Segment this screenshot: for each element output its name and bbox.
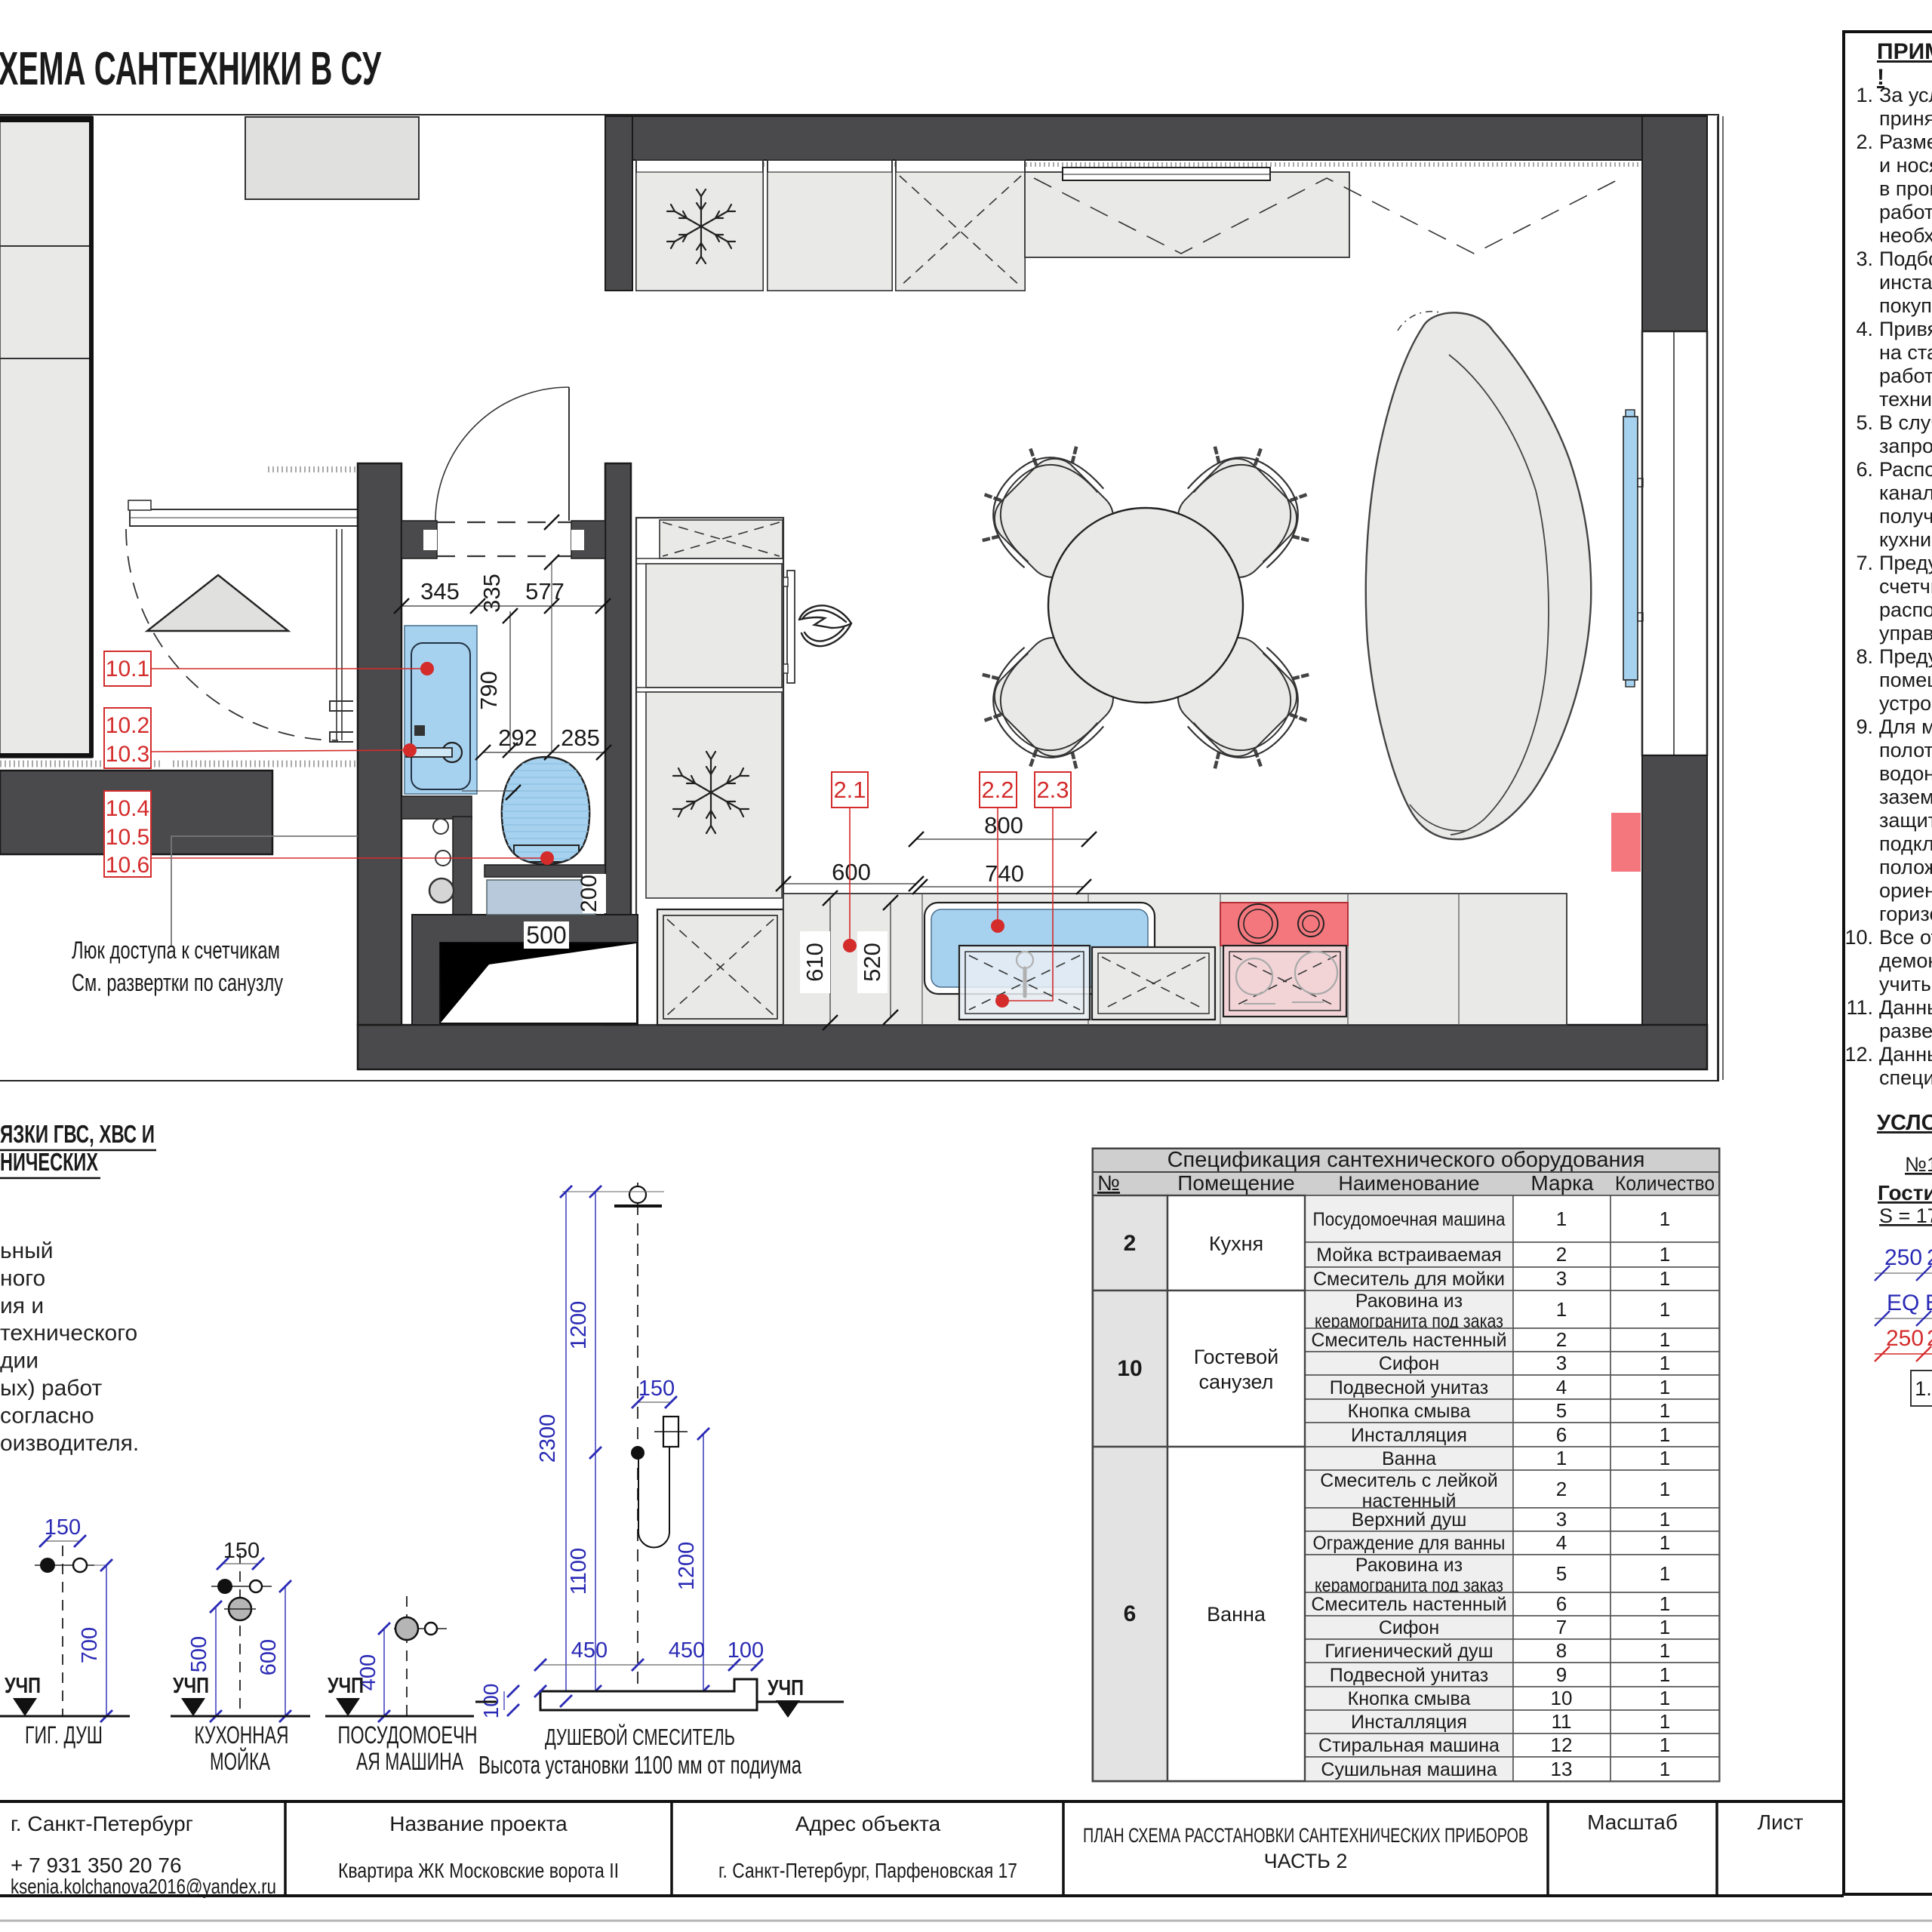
svg-text:помещений: помещений [1879, 669, 1932, 691]
svg-text:ЯЗКИ ГВС, ХВС И: ЯЗКИ ГВС, ХВС И [0, 1120, 155, 1148]
svg-text:Смеситель с лейкой: Смеситель с лейкой [1320, 1470, 1497, 1491]
svg-text:Подвесной унитаз: Подвесной унитаз [1330, 1665, 1488, 1686]
svg-text:3: 3 [1556, 1508, 1567, 1531]
svg-text:11.: 11. [1846, 996, 1873, 1019]
svg-text:Раковина из: Раковина из [1355, 1291, 1463, 1312]
svg-text:Верхний душ: Верхний душ [1352, 1509, 1467, 1531]
svg-text:1: 1 [1660, 1376, 1670, 1398]
svg-text:335: 335 [478, 574, 505, 613]
svg-text:технического: технического [0, 1321, 137, 1346]
svg-text:740: 740 [985, 860, 1024, 887]
svg-text:Предусмотр: Предусмотр [1879, 645, 1932, 668]
svg-text:Название проекта: Название проекта [389, 1812, 568, 1835]
svg-text:г. Санкт-Петербург: г. Санкт-Петербург [11, 1812, 193, 1835]
svg-text:1: 1 [1660, 1639, 1670, 1662]
svg-text:в процессе: в процессе [1879, 177, 1932, 200]
svg-text:6: 6 [1556, 1423, 1567, 1446]
svg-text:12: 12 [1551, 1734, 1573, 1756]
svg-text:12.: 12. [1844, 1043, 1873, 1066]
svg-text:6: 6 [1556, 1592, 1567, 1615]
svg-text:кухни и сант: кухни и сант [1879, 528, 1932, 551]
svg-text:500: 500 [187, 1636, 211, 1672]
svg-text:расположен: расположен [1879, 598, 1932, 621]
svg-text:4: 4 [1556, 1376, 1567, 1398]
svg-text:2: 2 [1556, 1478, 1567, 1500]
svg-text:1: 1 [1660, 1592, 1670, 1615]
svg-text:демонтажны: демонтажны [1879, 949, 1932, 972]
svg-text:10: 10 [1551, 1687, 1573, 1709]
svg-text:Квартира ЖК Московские ворота: Квартира ЖК Московские ворота II [338, 1859, 619, 1882]
svg-text:S = 17.9 м²: S = 17.9 м² [1879, 1204, 1932, 1227]
svg-text:150: 150 [45, 1515, 81, 1540]
svg-text:учитывать п: учитывать п [1879, 973, 1932, 995]
svg-text:УЧП: УЧП [768, 1676, 804, 1700]
svg-text:2.: 2. [1856, 131, 1873, 153]
svg-text:работ по чис: работ по чис [1879, 365, 1932, 387]
svg-text:положение о: положение о [1879, 856, 1932, 878]
svg-text:Предусмотр: Предусмотр [1879, 552, 1932, 574]
svg-text:577: 577 [525, 578, 565, 605]
svg-text:Количество: Количество [1615, 1172, 1715, 1195]
svg-text:1: 1 [1660, 1663, 1670, 1686]
svg-text:горизонталь: горизонталь [1879, 903, 1932, 925]
svg-text:2: 2 [1124, 1231, 1137, 1256]
svg-text:ДУШЕВОЙ СМЕСИТЕЛЬ: ДУШЕВОЙ СМЕСИТЕЛЬ [545, 1723, 735, 1750]
svg-text:600: 600 [257, 1639, 281, 1675]
svg-text:Инсталляция: Инсталляция [1351, 1425, 1467, 1446]
svg-text:СХЕМА САНТЕХНИКИ В СУ: СХЕМА САНТЕХНИКИ В СУ [0, 43, 382, 95]
svg-text:610: 610 [801, 943, 828, 982]
svg-text:водонагрева: водонагрева [1879, 762, 1932, 785]
svg-text:2300: 2300 [536, 1414, 560, 1463]
svg-text:АЯ МАШИНА: АЯ МАШИНА [356, 1748, 463, 1775]
svg-text:1: 1 [1660, 1687, 1670, 1709]
svg-text:устройства (: устройства ( [1879, 692, 1932, 715]
svg-text:ного: ного [0, 1266, 45, 1291]
svg-text:2.2: 2.2 [981, 777, 1014, 803]
svg-text:2: 2 [1556, 1243, 1567, 1266]
svg-text:Сифон: Сифон [1379, 1617, 1439, 1638]
svg-text:1: 1 [1660, 1734, 1670, 1756]
svg-text:1.1: 1.1 [1915, 1377, 1932, 1400]
svg-text:За условные: За условные [1879, 84, 1932, 106]
svg-text:10.6: 10.6 [106, 853, 149, 878]
svg-text:принято отм: принято отм [1879, 107, 1932, 130]
svg-text:Кухня: Кухня [1209, 1232, 1263, 1255]
svg-text:1: 1 [1660, 1243, 1670, 1266]
svg-text:Расположен: Расположен [1879, 458, 1932, 481]
svg-text:4: 4 [1556, 1531, 1567, 1554]
svg-text:10.5: 10.5 [106, 825, 149, 850]
svg-text:EQ: EQ [1887, 1291, 1919, 1315]
svg-text:10.2: 10.2 [106, 713, 149, 738]
svg-text:Инсталляция: Инсталляция [1351, 1712, 1467, 1733]
svg-text:Мойка встраиваемая: Мойка встраиваемая [1316, 1244, 1501, 1266]
svg-text:ия и: ия и [0, 1294, 44, 1318]
svg-text:МОЙКА: МОЙКА [210, 1748, 270, 1775]
svg-text:Данный черт: Данный черт [1879, 1043, 1932, 1066]
svg-text:УЧП: УЧП [173, 1674, 209, 1698]
svg-text:Подбор сант: Подбор сант [1879, 248, 1932, 270]
svg-text:1: 1 [1660, 1423, 1670, 1446]
svg-text:800: 800 [984, 812, 1023, 838]
svg-text:10.1: 10.1 [106, 657, 149, 681]
svg-text:покупки обо: покупки обо [1879, 294, 1932, 317]
svg-text:Стиральная машина: Стиральная машина [1318, 1735, 1500, 1756]
svg-text:1: 1 [1660, 1447, 1670, 1469]
svg-text:счетчиков во: счетчиков во [1879, 575, 1932, 598]
svg-text:ПРИМЕЧАНИЯ: ПРИМЕЧАНИЯ [1877, 39, 1932, 64]
svg-text:управляюще: управляюще [1879, 622, 1932, 645]
svg-text:№1 Помещ: №1 Помещ [1905, 1153, 1932, 1176]
svg-text:3: 3 [1556, 1352, 1567, 1374]
svg-text:1: 1 [1660, 1616, 1670, 1638]
svg-text:1: 1 [1556, 1207, 1567, 1230]
svg-text:520: 520 [859, 943, 885, 982]
svg-text:1: 1 [1660, 1207, 1670, 1230]
svg-text:8: 8 [1556, 1639, 1567, 1662]
svg-text:получения т: получения т [1879, 505, 1932, 528]
svg-text:2.1: 2.1 [833, 777, 866, 803]
svg-text:Ванна: Ванна [1207, 1603, 1266, 1626]
svg-text:Посудомоечная машина: Посудомоечная машина [1313, 1209, 1506, 1230]
svg-text:1: 1 [1556, 1447, 1567, 1469]
svg-text:Смеситель настенный: Смеситель настенный [1311, 1594, 1506, 1615]
svg-text:1: 1 [1660, 1710, 1670, 1733]
svg-text:Ограждение для ванны: Ограждение для ванны [1313, 1533, 1506, 1554]
svg-text:1: 1 [1660, 1478, 1670, 1500]
svg-text:250: 250 [1886, 1326, 1924, 1351]
svg-text:и носят реко: и носят реко [1879, 154, 1932, 177]
svg-text:Данный черт: Данный черт [1879, 996, 1932, 1019]
svg-text:В случае нев: В случае нев [1879, 411, 1932, 434]
svg-text:450: 450 [669, 1638, 705, 1663]
svg-text:8.: 8. [1856, 645, 1873, 668]
svg-text:2: 2 [1556, 1328, 1567, 1351]
svg-text:Привязка са: Привязка са [1879, 318, 1932, 340]
svg-text:техническим: техническим [1879, 388, 1932, 411]
svg-text:Смеситель для мойки: Смеситель для мойки [1313, 1269, 1505, 1290]
svg-text:ГИГ. ДУШ: ГИГ. ДУШ [25, 1721, 103, 1749]
svg-text:Спецификация сантехнического о: Спецификация сантехнического оборудовани… [1168, 1148, 1645, 1172]
svg-text:450: 450 [571, 1638, 608, 1663]
svg-text:4.: 4. [1856, 318, 1873, 340]
svg-text:КУХОННАЯ: КУХОННАЯ [195, 1721, 289, 1749]
svg-text:700: 700 [78, 1627, 102, 1663]
svg-text:Лист: Лист [1758, 1810, 1804, 1834]
svg-text:Люк доступа к счетчикам: Люк доступа к счетчикам [72, 937, 280, 964]
svg-text:1200: 1200 [675, 1542, 699, 1591]
svg-text:500: 500 [526, 921, 566, 949]
svg-text:УЧП: УЧП [328, 1674, 364, 1698]
svg-text:ПОСУДОМОЕЧН: ПОСУДОМОЕЧН [338, 1721, 478, 1749]
svg-text:2.3: 2.3 [1036, 777, 1069, 803]
svg-text:канализаци: канализаци [1879, 481, 1932, 504]
svg-text:1: 1 [1556, 1298, 1567, 1321]
svg-text:1: 1 [1660, 1562, 1670, 1585]
svg-text:600: 600 [832, 859, 871, 885]
svg-text:оизводителя.: оизводителя. [0, 1431, 139, 1456]
svg-text:развертками: развертками [1879, 1020, 1932, 1042]
svg-text:1: 1 [1660, 1508, 1670, 1531]
svg-text:№: № [1097, 1171, 1120, 1195]
svg-text:150: 150 [638, 1377, 675, 1401]
svg-text:ьный: ьный [0, 1238, 54, 1263]
svg-text:Все отделоч: Все отделоч [1879, 926, 1932, 949]
svg-text:1: 1 [1660, 1267, 1670, 1290]
svg-text:Масштаб: Масштаб [1587, 1810, 1678, 1834]
svg-text:13: 13 [1551, 1758, 1573, 1780]
svg-text:285: 285 [561, 724, 600, 751]
svg-text:Смеситель настенный: Смеситель настенный [1311, 1330, 1506, 1351]
svg-text:г. Санкт-Петербург, Парфеновск: г. Санкт-Петербург, Парфеновская 17 [718, 1859, 1017, 1882]
svg-text:работ! При н: работ! При н [1879, 201, 1932, 223]
svg-text:6.: 6. [1856, 458, 1873, 481]
svg-text:Гигиенический душ: Гигиенический душ [1324, 1641, 1493, 1662]
svg-text:Адрес объекта: Адрес объекта [795, 1812, 941, 1835]
svg-text:3: 3 [1556, 1267, 1567, 1290]
svg-text:необходимо: необходимо [1879, 224, 1932, 247]
svg-text:Наименование: Наименование [1338, 1172, 1479, 1195]
svg-text:УСЛОВНЫЕ ОБО: УСЛОВНЫЕ ОБО [1877, 1111, 1932, 1135]
svg-text:ЧАСТЬ 2: ЧАСТЬ 2 [1264, 1850, 1348, 1872]
svg-text:ПЛАН СХЕМА РАССТАНОВКИ САНТЕХН: ПЛАН СХЕМА РАССТАНОВКИ САНТЕХНИЧЕСКИХ ПР… [1083, 1824, 1528, 1847]
svg-text:3.: 3. [1856, 248, 1873, 270]
svg-text:Для монтаж: Для монтаж [1879, 715, 1932, 738]
svg-text:Сушильная машина: Сушильная машина [1321, 1759, 1497, 1780]
svg-text:790: 790 [475, 671, 502, 710]
svg-text:подключени: подключени [1879, 832, 1932, 855]
svg-text:Раковина из: Раковина из [1355, 1555, 1463, 1576]
svg-text:Гостиная: Гостиная [1878, 1181, 1932, 1204]
svg-text:Кнопка смыва: Кнопка смыва [1348, 1688, 1471, 1709]
svg-text:Помещение: Помещение [1177, 1171, 1295, 1195]
svg-text:Марка: Марка [1531, 1171, 1594, 1195]
svg-text:1: 1 [1660, 1328, 1670, 1351]
svg-text:согласно: согласно [0, 1403, 94, 1428]
svg-text:защитного о: защитного о [1879, 809, 1932, 832]
svg-text:Сифон: Сифон [1379, 1353, 1439, 1374]
svg-text:1: 1 [1660, 1758, 1670, 1780]
svg-text:Ванна: Ванна [1382, 1448, 1436, 1469]
svg-text:345: 345 [420, 578, 460, 605]
svg-text:1200: 1200 [567, 1301, 591, 1350]
svg-text:запросить и: запросить и [1879, 435, 1932, 457]
svg-text:7: 7 [1556, 1616, 1567, 1638]
svg-text:Кнопка смыва: Кнопка смыва [1348, 1401, 1471, 1422]
svg-text:УЧП: УЧП [5, 1674, 41, 1698]
svg-text:5: 5 [1556, 1399, 1567, 1422]
svg-text:1.: 1. [1856, 84, 1873, 106]
svg-text:11: 11 [1552, 1710, 1572, 1733]
svg-text:1: 1 [1660, 1531, 1670, 1554]
svg-text:на стадии че: на стадии че [1879, 341, 1932, 364]
svg-text:Размеры ука: Размеры ука [1879, 131, 1932, 153]
svg-text:150: 150 [223, 1539, 260, 1563]
svg-text:10.4: 10.4 [106, 796, 149, 821]
svg-text:6: 6 [1124, 1601, 1137, 1626]
svg-text:9.: 9. [1856, 715, 1873, 738]
svg-text:10.: 10. [1844, 926, 1873, 949]
svg-text:1100: 1100 [567, 1548, 591, 1595]
svg-text:+ 7 931 350 20 76: + 7 931 350 20 76 [11, 1854, 182, 1877]
svg-text:полотенцесу: полотенцесу [1879, 739, 1932, 761]
svg-text:200: 200 [577, 875, 601, 912]
svg-text:См. развертки по санузлу: См. развертки по санузлу [72, 969, 283, 996]
svg-text:10: 10 [1117, 1356, 1142, 1381]
svg-text:санузел: санузел [1199, 1371, 1274, 1393]
svg-text:7.: 7. [1856, 552, 1873, 574]
svg-text:100: 100 [728, 1638, 764, 1663]
svg-text:заземление: заземление [1879, 786, 1932, 808]
svg-text:5.: 5. [1856, 411, 1873, 434]
svg-text:ориентиров: ориентиров [1879, 879, 1932, 902]
svg-text:Высота установки 1100 мм от по: Высота установки 1100 мм от подиума [478, 1751, 801, 1779]
svg-text:дии: дии [0, 1349, 38, 1374]
svg-text:9: 9 [1556, 1663, 1567, 1686]
svg-text:Подвесной унитаз: Подвесной унитаз [1330, 1377, 1488, 1398]
svg-text:5: 5 [1556, 1562, 1567, 1585]
svg-text:10.3: 10.3 [106, 742, 149, 767]
svg-text:1: 1 [1660, 1352, 1670, 1374]
svg-text:специализир: специализир [1879, 1066, 1932, 1089]
svg-text:292: 292 [498, 724, 537, 751]
svg-text:ksenia.kolchanova2016@yandex.r: ksenia.kolchanova2016@yandex.ru [11, 1875, 276, 1898]
svg-text:ых) работ: ых) работ [0, 1376, 102, 1401]
svg-text:1: 1 [1660, 1298, 1670, 1321]
svg-text:НИЧЕСКИХ: НИЧЕСКИХ [0, 1148, 98, 1176]
svg-text:1: 1 [1660, 1399, 1670, 1422]
svg-text:Гостевой: Гостевой [1194, 1346, 1279, 1368]
svg-text:инсталляци: инсталляци [1879, 271, 1932, 294]
